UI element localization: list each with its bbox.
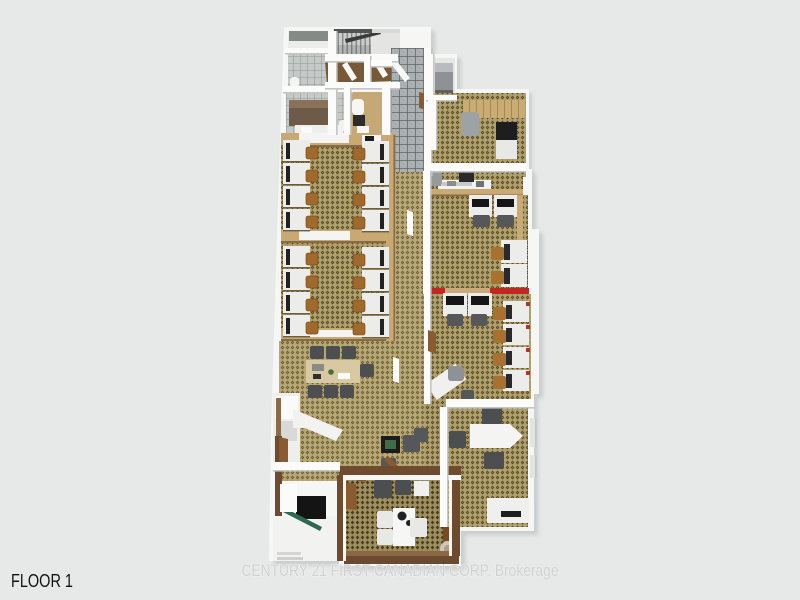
svg-text:FLOOR 1: FLOOR 1 xyxy=(11,571,73,591)
svg-text:CENTURY 21 FIRST CANADIAN CORP: CENTURY 21 FIRST CANADIAN CORP. Brokerag… xyxy=(242,562,559,580)
